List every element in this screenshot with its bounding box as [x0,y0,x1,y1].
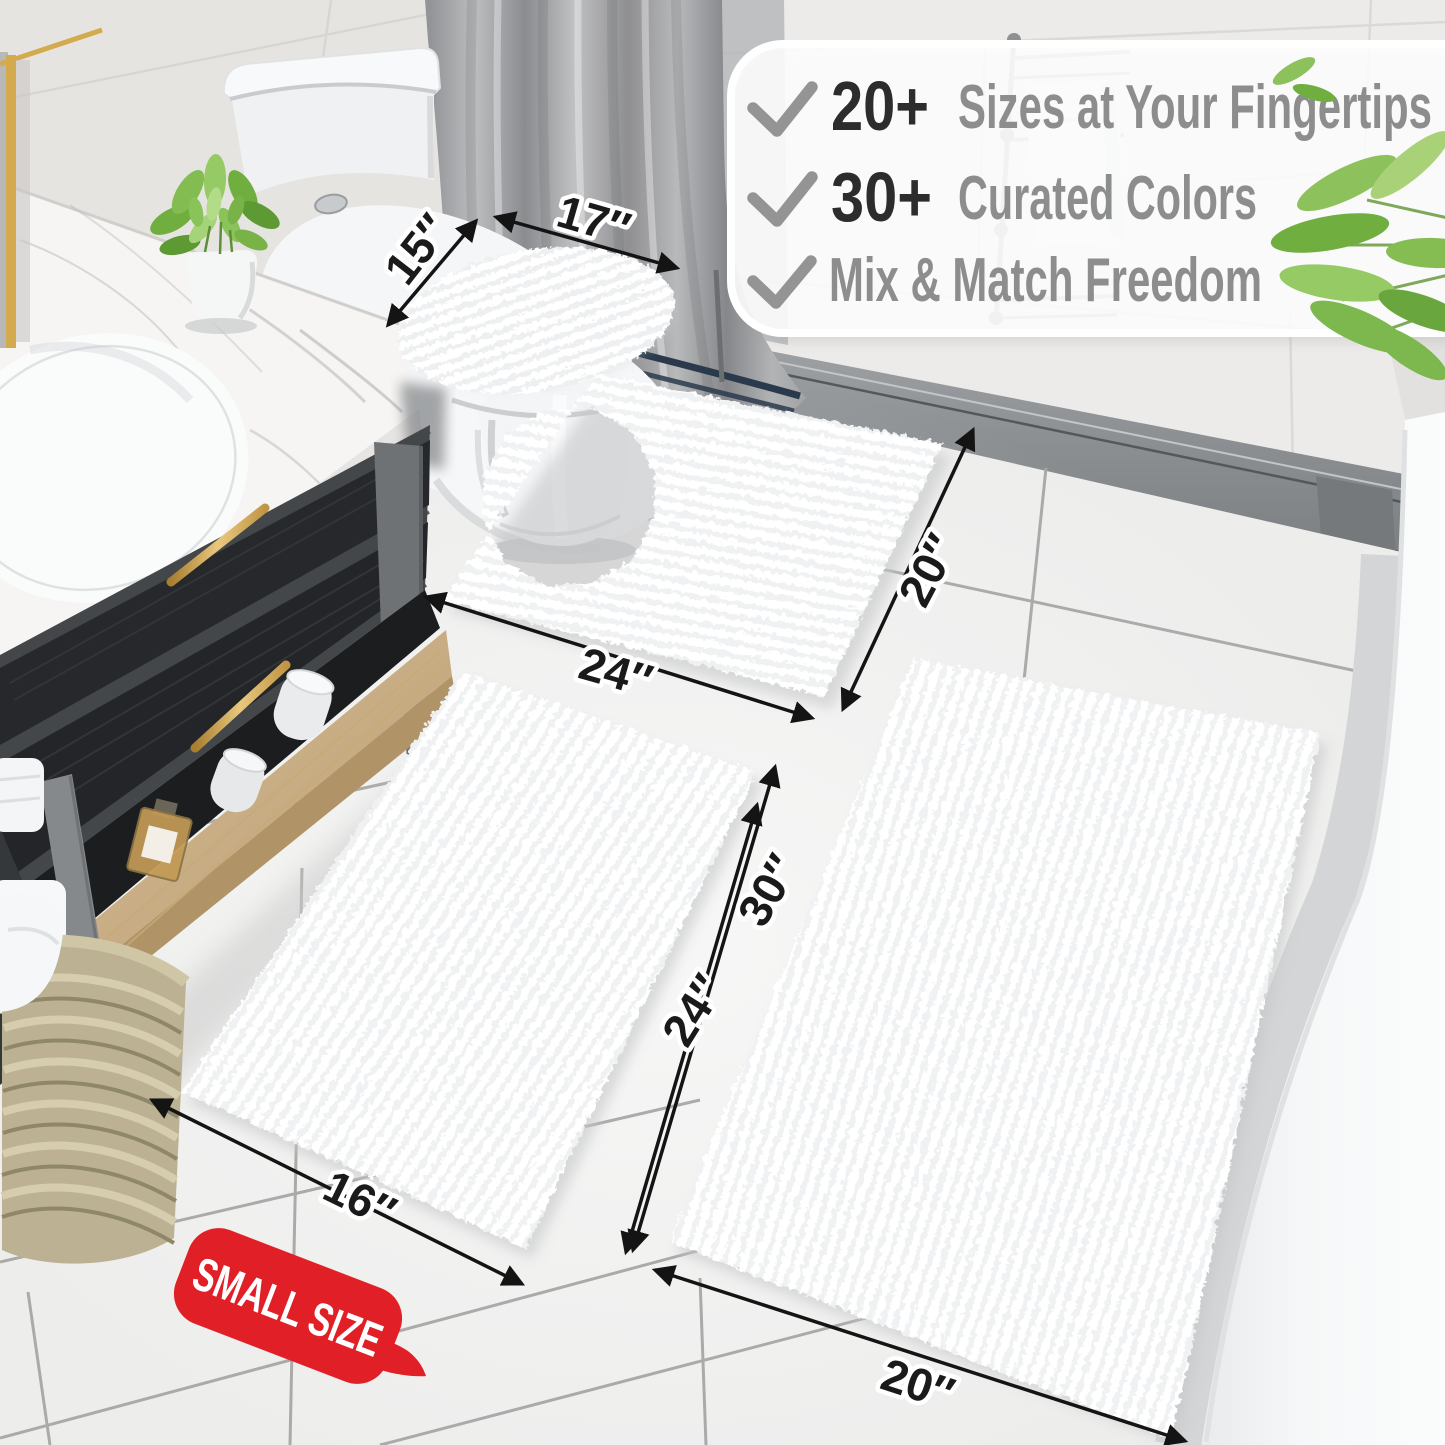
svg-text:Curated Colors: Curated Colors [958,164,1257,233]
svg-text:Mix & Match Freedom: Mix & Match Freedom [829,246,1262,315]
svg-text:30+: 30+ [831,158,932,236]
svg-text:Sizes at Your Fingertips: Sizes at Your Fingertips [958,73,1432,142]
svg-text:20+: 20+ [831,67,929,145]
